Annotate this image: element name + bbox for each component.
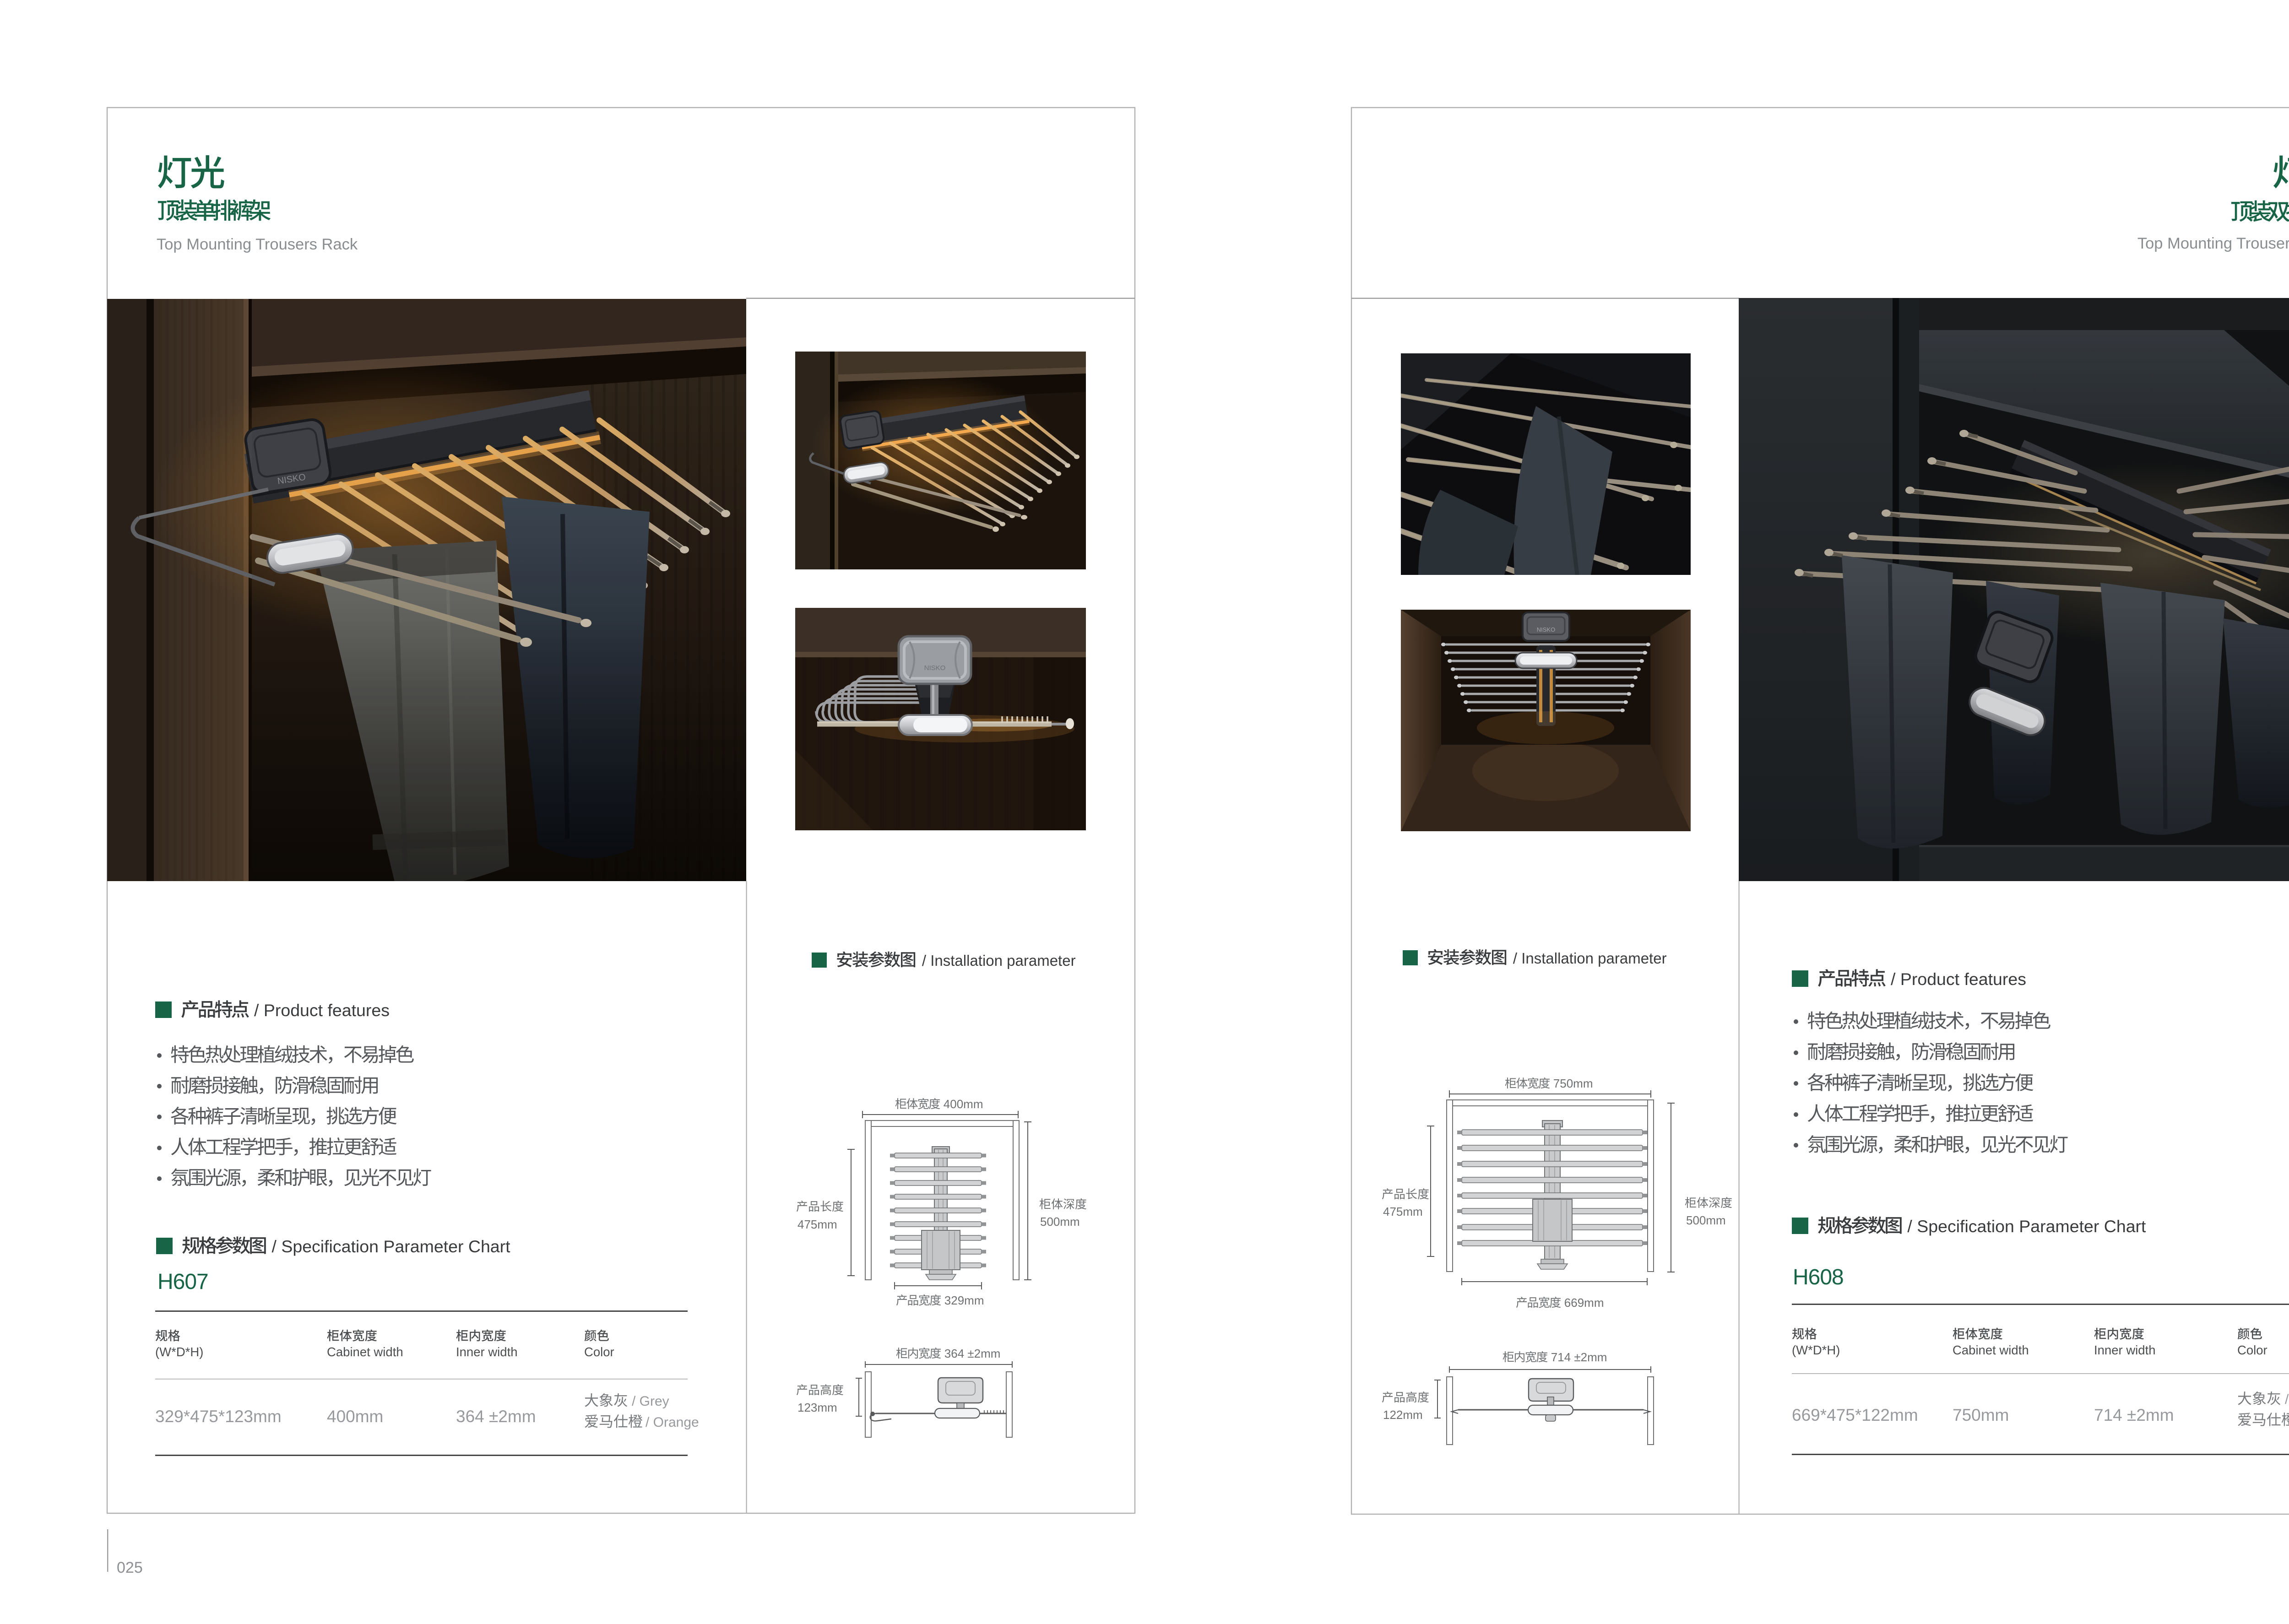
svg-text:329*475*123mm: 329*475*123mm [155, 1407, 282, 1426]
svg-text:Cabinet width: Cabinet width [1953, 1343, 2029, 1357]
svg-text:329mm: 329mm [944, 1294, 984, 1307]
svg-text:500mm: 500mm [1686, 1213, 1726, 1227]
svg-text:750mm: 750mm [1953, 1406, 2009, 1424]
svg-text:475mm: 475mm [1383, 1205, 1423, 1218]
svg-text:NISKO: NISKO [924, 664, 946, 672]
svg-text:/ Product features: / Product features [1891, 969, 2026, 989]
svg-text:H607: H607 [157, 1270, 208, 1294]
svg-text:(W*D*H): (W*D*H) [155, 1345, 203, 1359]
svg-text:714 ±2mm: 714 ±2mm [1551, 1350, 1607, 1364]
svg-text:Inner width: Inner width [456, 1345, 518, 1359]
svg-text:/ Installation parameter: / Installation parameter [1513, 950, 1667, 967]
svg-text:714 ±2mm: 714 ±2mm [2094, 1406, 2174, 1424]
svg-text:NISKO: NISKO [1537, 626, 1555, 633]
svg-text:Color: Color [2237, 1343, 2267, 1357]
svg-text:/ Product features: / Product features [254, 1001, 390, 1020]
svg-text:/ Orange: / Orange [645, 1415, 699, 1430]
svg-text:400mm: 400mm [327, 1407, 383, 1426]
svg-text:/ Specification Parameter Cha: / Specification Parameter Chart [1907, 1217, 2146, 1236]
svg-text:500mm: 500mm [1040, 1215, 1080, 1229]
svg-text:400mm: 400mm [944, 1097, 983, 1111]
svg-text:669mm: 669mm [1564, 1296, 1604, 1310]
svg-text:Cabinet width: Cabinet width [327, 1345, 403, 1359]
svg-text:Top Mounting Trousers Rack: Top Mounting Trousers Rack [157, 236, 358, 253]
svg-text:Inner width: Inner width [2094, 1343, 2156, 1357]
svg-text:750mm: 750mm [1553, 1077, 1593, 1090]
svg-text:Top Mounting Trousers Rack: Top Mounting Trousers Rack [2137, 235, 2289, 252]
svg-text:475mm: 475mm [797, 1218, 837, 1231]
svg-text:(W*D*H): (W*D*H) [1792, 1343, 1840, 1357]
svg-text:H608: H608 [1793, 1265, 1844, 1289]
svg-text:/ Installation parameter: / Installation parameter [922, 952, 1076, 969]
svg-text:025: 025 [117, 1559, 143, 1576]
svg-text:122mm: 122mm [1383, 1408, 1423, 1422]
svg-text:Color: Color [584, 1345, 614, 1359]
svg-text:/ Specification Parameter Cha: / Specification Parameter Chart [272, 1237, 511, 1256]
svg-text:/ Grey: / Grey [632, 1394, 669, 1409]
svg-text:364 ±2mm: 364 ±2mm [944, 1347, 1001, 1360]
svg-text:123mm: 123mm [797, 1401, 837, 1414]
svg-text:364 ±2mm: 364 ±2mm [456, 1407, 536, 1426]
svg-text:/ Grey: / Grey [2285, 1392, 2289, 1407]
svg-text:669*475*122mm: 669*475*122mm [1792, 1406, 1918, 1424]
